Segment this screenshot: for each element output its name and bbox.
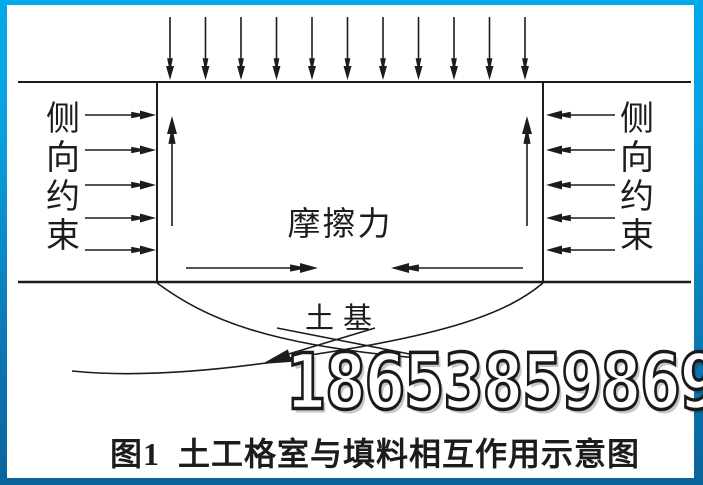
friction-label: 摩擦力 (258, 197, 422, 245)
right-constraint-label: 侧向约束 (618, 100, 656, 256)
figure-caption: 图1 土工格室与填料相互作用示意图 (110, 429, 630, 475)
left-constraint-label: 侧向约束 (44, 100, 82, 256)
watermark-number: 18653859869 (286, 344, 703, 421)
heave-curve (72, 358, 300, 374)
figure-frame: 侧向约束 侧向约束 摩擦力 土基 18653859869 图1 土工格室与填料相… (0, 0, 703, 485)
subgrade-label: 土基 (281, 295, 405, 337)
